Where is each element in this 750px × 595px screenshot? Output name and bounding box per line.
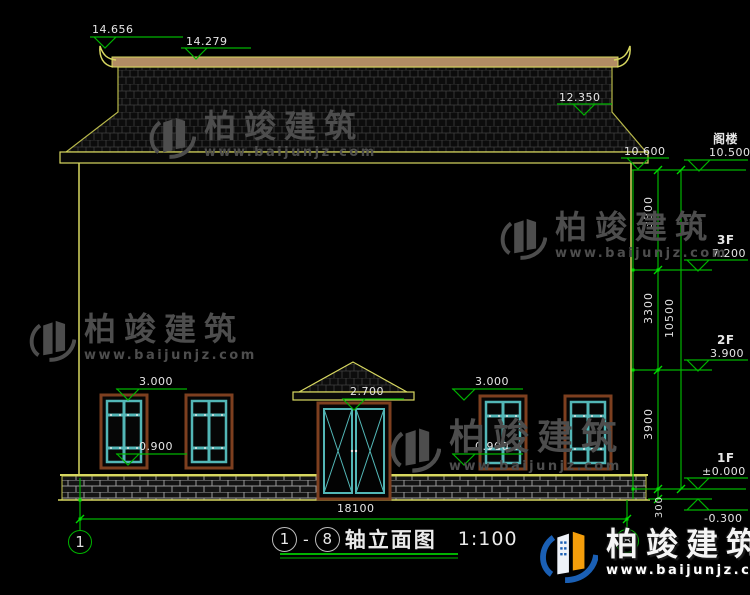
dim-total-height: 10500 [664,298,675,338]
dim-attic-to-3f: 3300 [643,196,654,228]
elev-window-sill-right: 0.900 [475,441,509,452]
elev-ridge: 14.279 [186,36,228,47]
axis-bubble-left: 1 [68,530,92,554]
title-axis-end-circle: 8 [315,527,340,552]
axis-number-left: 1 [75,535,85,550]
cad-elevation-drawing: 14.656 14.279 12.350 10.600 阁楼 10.500 3F… [0,0,750,595]
title-scale: 1:100 [458,528,518,550]
elev-door-top: 2.700 [350,386,384,397]
elev-window-top-left: 3.000 [139,376,173,387]
elev-window-top-right: 3.000 [475,376,509,387]
elev-attic: 10.500 [709,147,750,158]
elev-eave: 10.600 [624,146,666,157]
floor-label-2f: 2F [717,334,735,346]
title-dash: - [303,530,309,549]
elev-roof-slope: 12.350 [559,92,601,103]
elev-1f: ±0.000 [702,466,746,477]
title-axis-start-circle: 1 [272,527,297,552]
axis-number-right: 8 [622,534,632,549]
dim-2f-to-1f: 3900 [643,408,654,440]
axis-bubble-right: 8 [615,529,639,553]
elev-ground: -0.300 [704,513,742,524]
elev-window-sill-left: 0.900 [139,441,173,452]
elev-3f: 7.200 [712,248,746,259]
window-4 [565,396,611,469]
eave-band [60,152,648,163]
title-text: 轴立面图 [345,524,437,554]
floor-label-3f: 3F [717,234,735,246]
attic-label: 阁楼 [713,133,738,145]
drawing-title: 1 - 8 轴立面图 1:100 [272,524,518,554]
dim-total-width: 18100 [337,503,375,514]
elev-2f: 3.900 [710,348,744,359]
floor-label-1f: 1F [717,452,735,464]
elev-ridge-tip: 14.656 [92,24,134,35]
dim-3f-to-2f: 3300 [643,292,654,324]
window-1 [101,395,147,468]
dim-plinth: 300 [655,496,665,518]
entrance-door [318,403,390,499]
elevation-linework [0,0,750,595]
window-3 [480,396,526,469]
window-2 [186,395,232,468]
